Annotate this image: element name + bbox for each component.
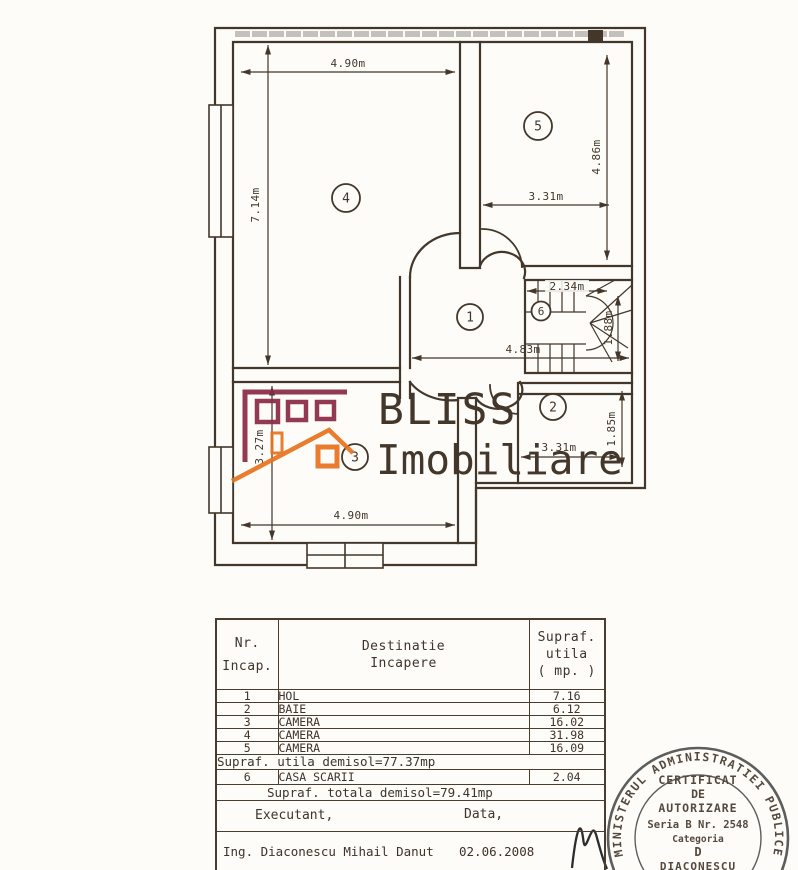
- logo-square-3: [317, 402, 334, 419]
- table-row: 4 CAMERA 31.98: [216, 729, 605, 742]
- door-arc-room5: [482, 229, 522, 267]
- cell-nr: 5: [216, 742, 278, 755]
- wall-room5-bottom: [522, 266, 632, 280]
- subtotal-row: Supraf. utila demisol=77.37mp: [216, 755, 605, 770]
- stamp-line-5: Categoria: [672, 834, 724, 845]
- cell-nr: 1: [216, 690, 278, 703]
- cell-supraf: 16.09: [529, 742, 605, 755]
- header-destinatie: Destinatie Incapere: [278, 619, 529, 690]
- room-label-2: 2: [549, 401, 557, 416]
- dim-room4-width: 4.90m: [330, 57, 365, 70]
- stamp-line-3: AUTORIZARE: [658, 801, 737, 815]
- total-text: Supraf. totala demisol=79.41mp: [216, 785, 605, 801]
- executant-name: Ing. Diaconescu Mihail Danut: [223, 844, 434, 859]
- brand-subname: Imobiliare: [376, 436, 623, 484]
- header-sup-line2: utila: [530, 646, 605, 663]
- wall-stairs: [525, 280, 632, 373]
- dim-room4-height: 7.14m: [249, 187, 262, 222]
- cell-nr: 3: [216, 716, 278, 729]
- wall-room4-room5: [460, 42, 480, 268]
- stamp-line-6: D: [694, 845, 701, 859]
- window-left-upper: [209, 105, 233, 237]
- brand-name: BLISS: [378, 385, 517, 435]
- house-window-icon: [318, 447, 337, 466]
- table-row: 3 CAMERA 16.02: [216, 716, 605, 729]
- room-label-1: 1: [466, 311, 474, 326]
- cell-dest: HOL: [278, 690, 529, 703]
- house-chimney-icon: [272, 433, 282, 453]
- cell-nr: 6: [216, 770, 278, 785]
- executant-label: Executant,: [255, 808, 333, 823]
- wall-hall-left: [400, 277, 410, 398]
- header-nr-line1: Nr.: [217, 635, 278, 652]
- dim-room3-width: 4.90m: [333, 509, 368, 522]
- watermark-logo: [232, 392, 353, 481]
- header-sup-line3: ( mp. ): [530, 663, 605, 680]
- cell-dest: CAMERA: [278, 716, 529, 729]
- total-row: Supraf. totala demisol=79.41mp: [216, 785, 605, 801]
- cell-dest: CAMERA: [278, 729, 529, 742]
- stamp-line-2: DE: [691, 787, 705, 801]
- cell-supraf: 2.04: [529, 770, 605, 785]
- cell-dest: CAMERA: [278, 742, 529, 755]
- table-header-row: Nr. Incap. Destinatie Incapere Supraf. u…: [216, 619, 605, 690]
- room-area-table: Nr. Incap. Destinatie Incapere Supraf. u…: [215, 618, 604, 870]
- scanned-floor-plan-document: 4.90m 7.14m 3.31m 4.86m 2.34m 1.88m 4.83…: [0, 0, 798, 870]
- dim-room3-height: 3.27m: [253, 429, 266, 464]
- authorization-stamp: MINISTERUL ADMINISTRATIEI PUBLICE CERTIF…: [608, 748, 788, 870]
- wall-room4-room3: [233, 368, 400, 382]
- cell-nr: 2: [216, 703, 278, 716]
- window-bottom: [307, 543, 383, 568]
- cell-supraf: 6.12: [529, 703, 605, 716]
- header-dest-line1: Destinatie: [279, 638, 529, 655]
- executant-data-row: Executant, Data,: [216, 801, 605, 832]
- room-label-5: 5: [534, 120, 542, 135]
- executant-data-cell: Executant, Data,: [216, 801, 605, 832]
- subtotal-utila-text: Supraf. utila demisol=77.37mp: [216, 755, 605, 770]
- logo-square-2: [288, 402, 306, 420]
- hall-arch-top: [410, 233, 525, 278]
- cell-supraf: 7.16: [529, 690, 605, 703]
- cell-supraf: 16.02: [529, 716, 605, 729]
- header-suprafata: Supraf. utila ( mp. ): [529, 619, 605, 690]
- header-sup-line1: Supraf.: [530, 629, 605, 646]
- dim-stairs-height: 1.88m: [602, 310, 615, 345]
- watermark-text: BLISS Imobiliare: [376, 385, 623, 484]
- exterior-wall-outer: [215, 28, 645, 565]
- cell-supraf: 31.98: [529, 729, 605, 742]
- flue-mark: [588, 30, 603, 42]
- dim-room5-height: 4.86m: [590, 139, 603, 174]
- dim-room5-width: 3.31m: [528, 190, 563, 203]
- staircase: [525, 280, 632, 373]
- cell-nr: 4: [216, 729, 278, 742]
- windows: [209, 105, 383, 568]
- stamp-line-1: CERTIFICAT: [658, 773, 737, 787]
- table-row: 5 CAMERA 16.09: [216, 742, 605, 755]
- logo-square-1: [257, 401, 278, 422]
- header-nr-incap: Nr. Incap.: [216, 619, 278, 690]
- stamp-line-4: Seria B Nr. 2548: [647, 819, 748, 831]
- table-row-casa-scarii: 6 CASA SCARII 2.04: [216, 770, 605, 785]
- stamp-line-7: DIACONESCU: [660, 860, 736, 870]
- table-row: 2 BAIE 6.12: [216, 703, 605, 716]
- signature-cell: Ing. Diaconescu Mihail Danut 02.06.2008: [216, 832, 605, 870]
- cell-dest: BAIE: [278, 703, 529, 716]
- header-dest-line2: Incapere: [279, 655, 529, 672]
- date-label: Data,: [464, 807, 503, 822]
- dim-stairs-width: 2.34m: [549, 280, 584, 293]
- building-walls: [215, 28, 645, 565]
- room-label-6: 6: [538, 305, 545, 318]
- window-left-lower: [209, 447, 233, 513]
- room-label-4: 4: [342, 192, 350, 207]
- header-nr-line2: Incap.: [217, 658, 278, 675]
- cell-dest: CASA SCARII: [278, 770, 529, 785]
- dim-hall-width: 4.83m: [505, 343, 540, 356]
- document-date: 02.06.2008: [459, 844, 534, 859]
- signature-row: Ing. Diaconescu Mihail Danut 02.06.2008: [216, 832, 605, 870]
- table-row: 1 HOL 7.16: [216, 690, 605, 703]
